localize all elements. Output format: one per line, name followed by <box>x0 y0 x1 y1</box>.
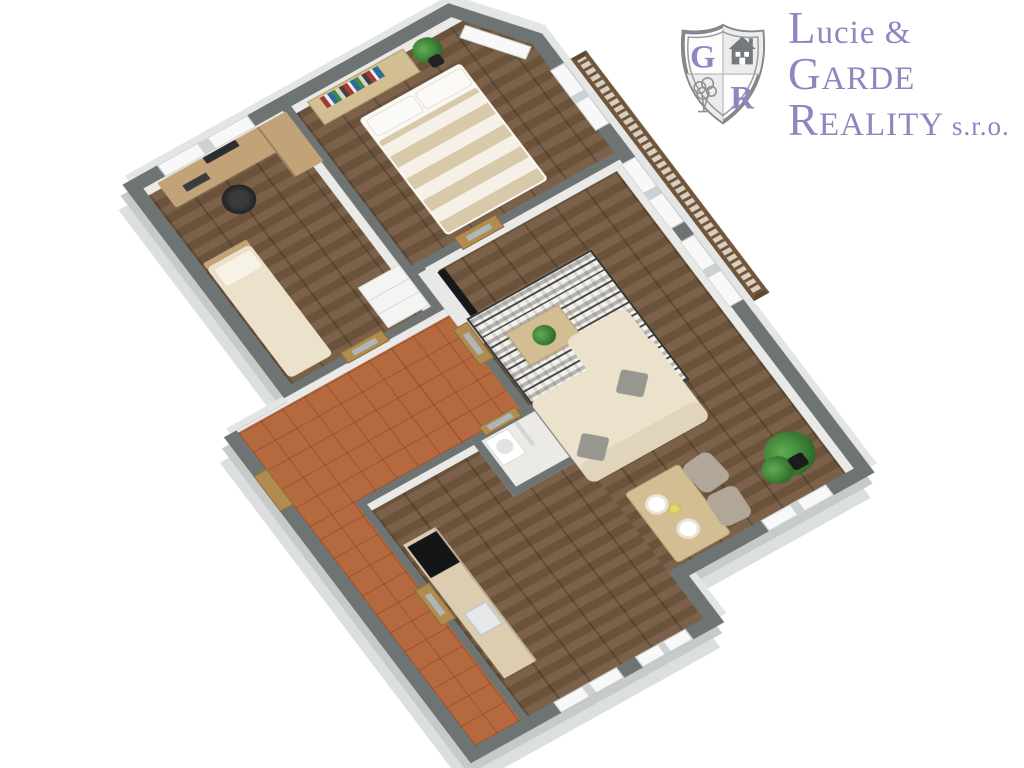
floorplan-render-page: G R Lucie & GARDE REALITY s.r.o. <box>0 0 1024 768</box>
brand-name-line1: Lucie & <box>788 6 1010 52</box>
sofa-pillow <box>616 369 649 398</box>
sofa-pillow <box>576 433 609 462</box>
brand-logo: G R Lucie & GARDE REALITY s.r.o. <box>674 6 1010 144</box>
brand-name-line2: GARDE <box>788 52 1010 98</box>
monogram-r: R <box>730 81 754 117</box>
brand-text: Lucie & GARDE REALITY s.r.o. <box>788 6 1010 144</box>
monogram-g: G <box>690 39 715 75</box>
brand-suffix: s.r.o. <box>944 111 1010 141</box>
brand-shield-icon: G R <box>674 23 772 127</box>
brand-name-line3: REALITY s.r.o. <box>788 98 1010 144</box>
